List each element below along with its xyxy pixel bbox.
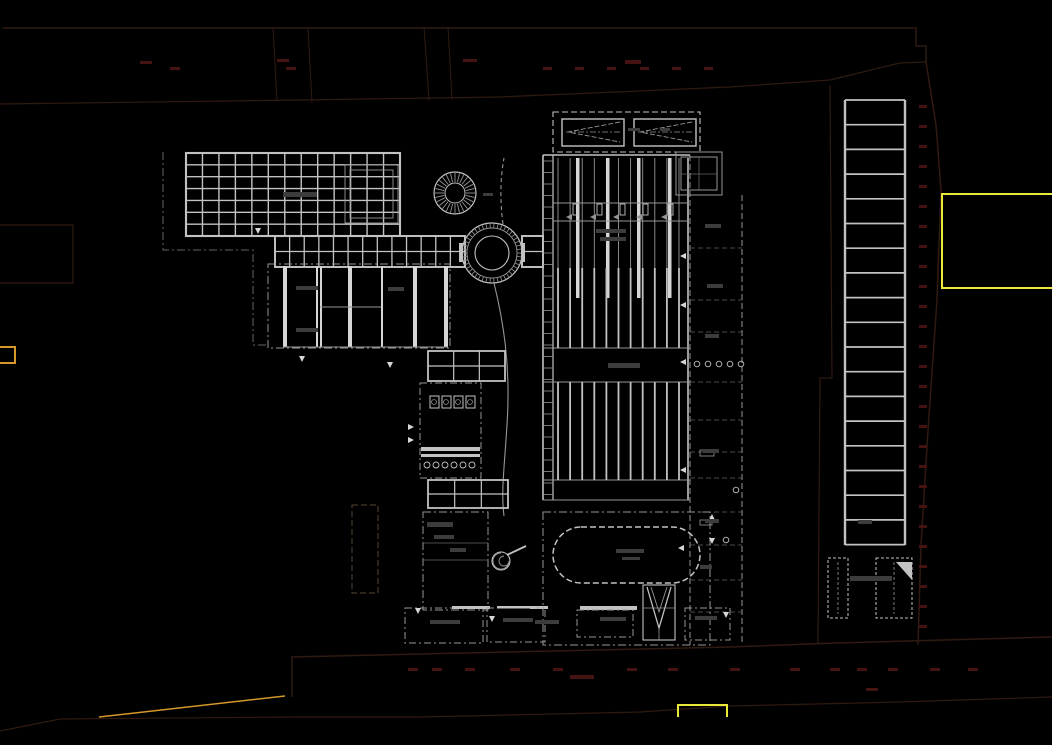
wc-counter	[421, 447, 480, 457]
canopy-mullion	[681, 157, 717, 190]
walkway-grid-north	[275, 236, 465, 267]
west-building-partitions	[283, 307, 448, 347]
path-promenade	[494, 283, 508, 516]
west-building-outline	[268, 264, 450, 348]
south-room-b	[487, 608, 545, 642]
parcel-northwest	[0, 225, 73, 283]
walkway-grid-mid-upper	[428, 351, 505, 381]
court-circle-inner	[475, 236, 509, 270]
boundary-north-road-top	[3, 28, 926, 62]
hall-band-lines	[543, 203, 690, 500]
court-circle-outer	[462, 223, 522, 283]
south-room-d	[685, 608, 730, 640]
east-wing-partitions	[690, 248, 742, 612]
ramp-direction-arrow	[896, 562, 912, 580]
stair-drum-treads	[435, 173, 475, 213]
east-wing-casework	[700, 450, 714, 525]
east-wing-boundary	[690, 155, 742, 645]
wc-fixtures-row	[424, 462, 475, 468]
walkway-grid-east	[522, 236, 543, 267]
stair-drum-inner	[445, 183, 465, 203]
marker-orange-west	[0, 347, 15, 363]
court-thresholds	[459, 243, 525, 262]
boundary-south-road-top	[292, 637, 1052, 697]
drawing-viewport[interactable]	[0, 0, 1052, 745]
dim-marks-south	[408, 668, 978, 691]
south-room-c	[577, 610, 633, 637]
service-bay-rungs	[543, 161, 553, 495]
north-road-crossings	[273, 27, 452, 103]
marker-yellow-east	[942, 194, 1052, 288]
boundary-north-road-bottom	[0, 62, 926, 104]
label-marks	[283, 128, 892, 624]
pool-deck-walls	[530, 606, 637, 610]
ramp-arrow-outer	[647, 587, 671, 628]
pool	[553, 527, 700, 583]
pergola-room-frame	[345, 165, 398, 223]
path-arrival-dashed	[501, 158, 504, 224]
boundary-east-road-west	[818, 85, 832, 643]
structural-walls	[576, 158, 672, 298]
boundary-south-road-bottom	[0, 697, 1052, 731]
site-plan-svg	[0, 0, 1052, 745]
south-room-a	[405, 608, 483, 643]
parking-stalls	[845, 100, 905, 545]
south-wing-walls	[452, 606, 537, 609]
boundary-east-road-east	[918, 62, 941, 645]
ramp-pad-dividers	[838, 562, 894, 614]
walkway-grid-mid-lower	[428, 480, 508, 508]
entry-canopy-line	[507, 546, 526, 555]
spiral-stair-swirl	[493, 553, 509, 569]
west-building-walls	[283, 266, 448, 347]
tank-rows-lower	[558, 382, 679, 480]
boundary-orange-segment	[99, 696, 285, 717]
southwest-annex	[352, 505, 378, 593]
